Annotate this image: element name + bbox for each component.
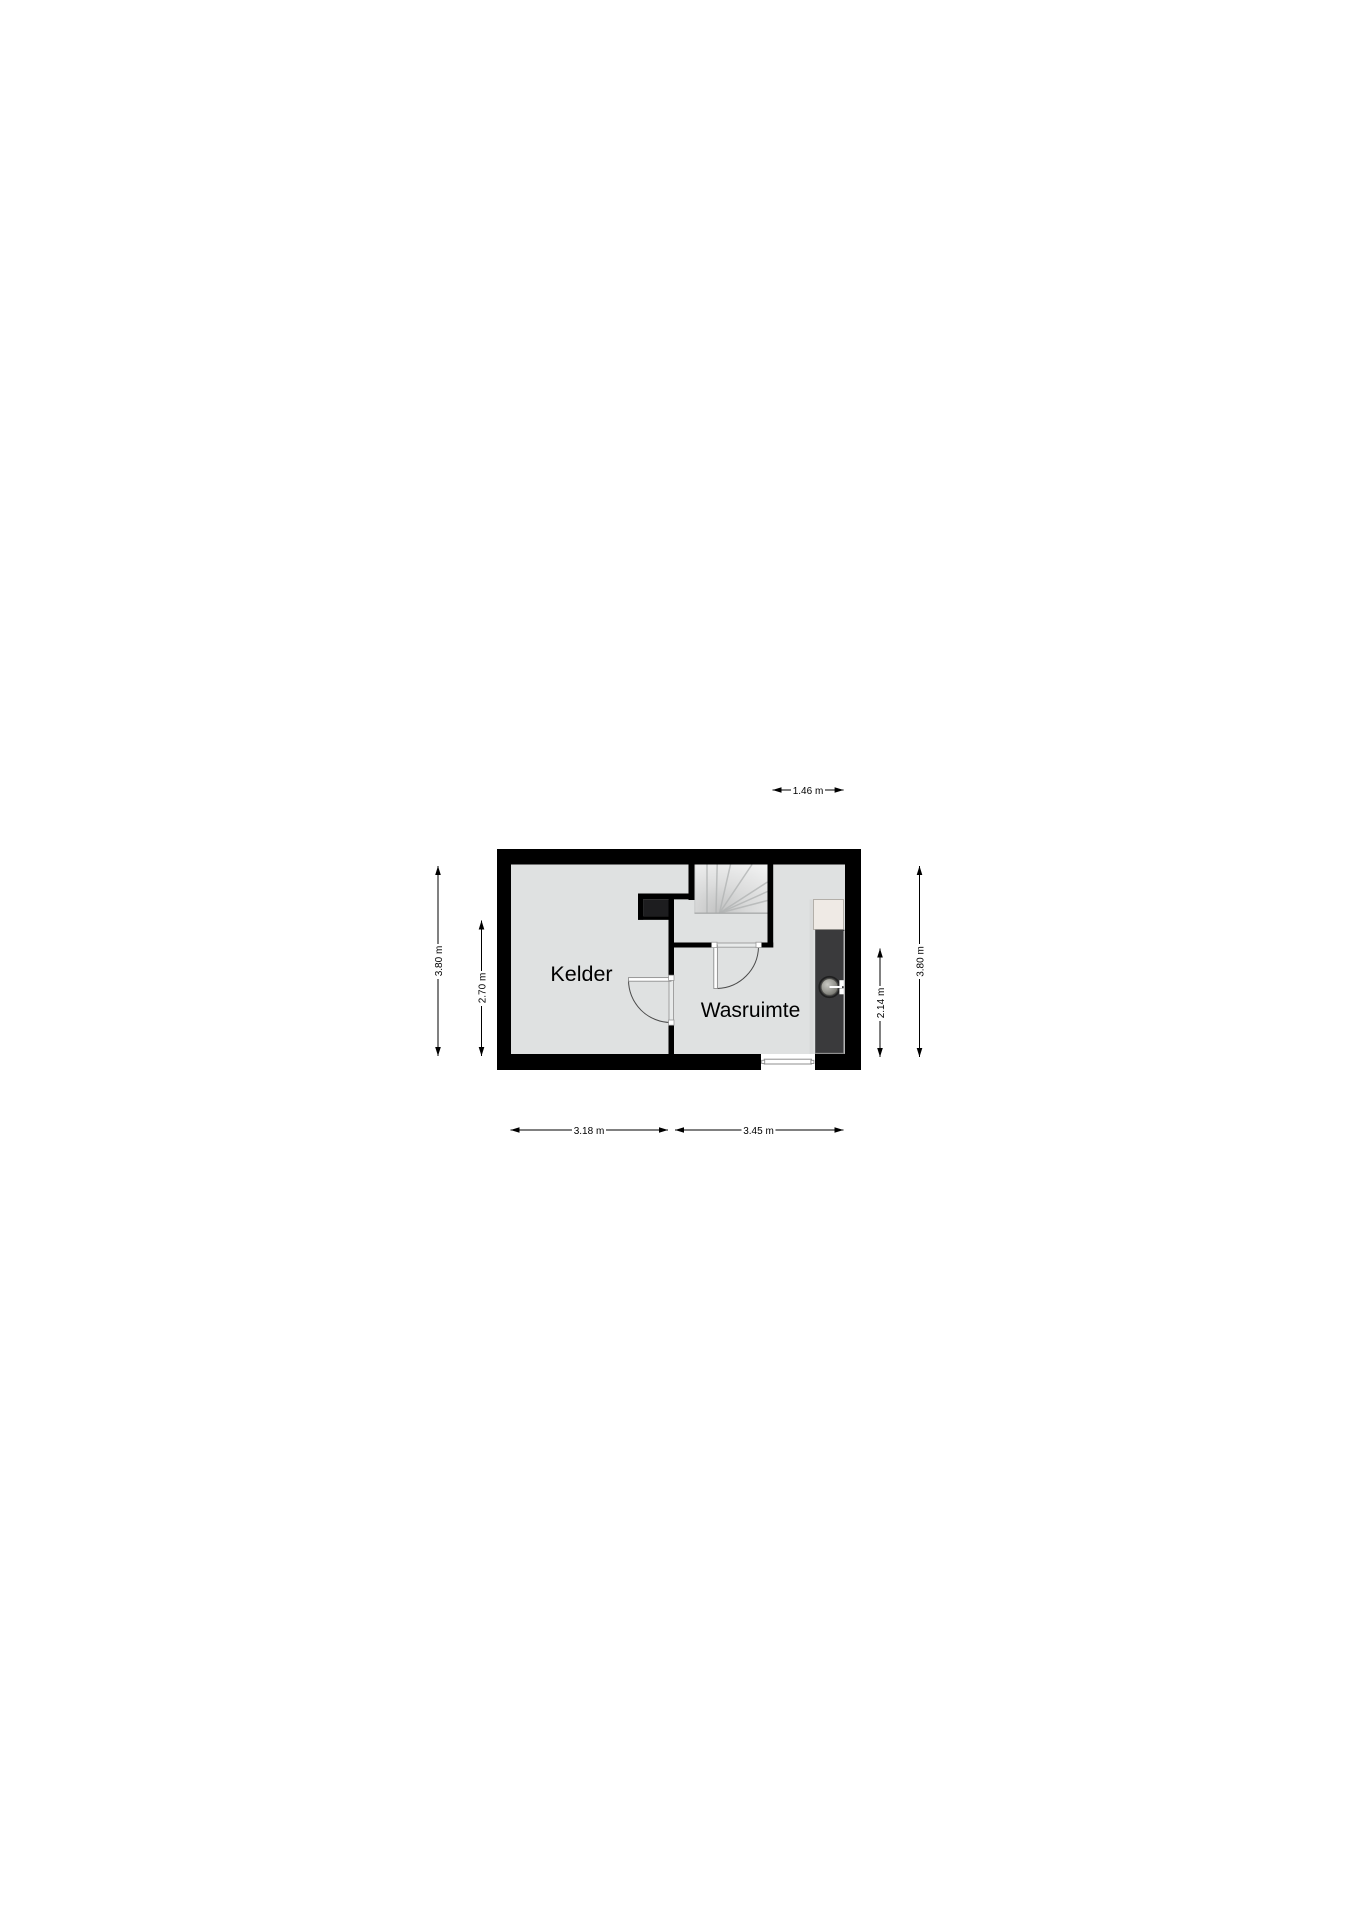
- svg-text:3.45 m: 3.45 m: [743, 1126, 774, 1137]
- svg-text:3.80 m: 3.80 m: [916, 946, 927, 977]
- svg-text:3.80 m: 3.80 m: [434, 946, 445, 977]
- svg-text:Wasruimte: Wasruimte: [701, 999, 801, 1022]
- svg-text:1.46 m: 1.46 m: [793, 786, 824, 797]
- svg-text:2.14 m: 2.14 m: [876, 988, 887, 1019]
- svg-text:Kelder: Kelder: [550, 962, 612, 986]
- svg-text:3.18 m: 3.18 m: [574, 1126, 605, 1137]
- svg-text:2.70 m: 2.70 m: [478, 973, 489, 1004]
